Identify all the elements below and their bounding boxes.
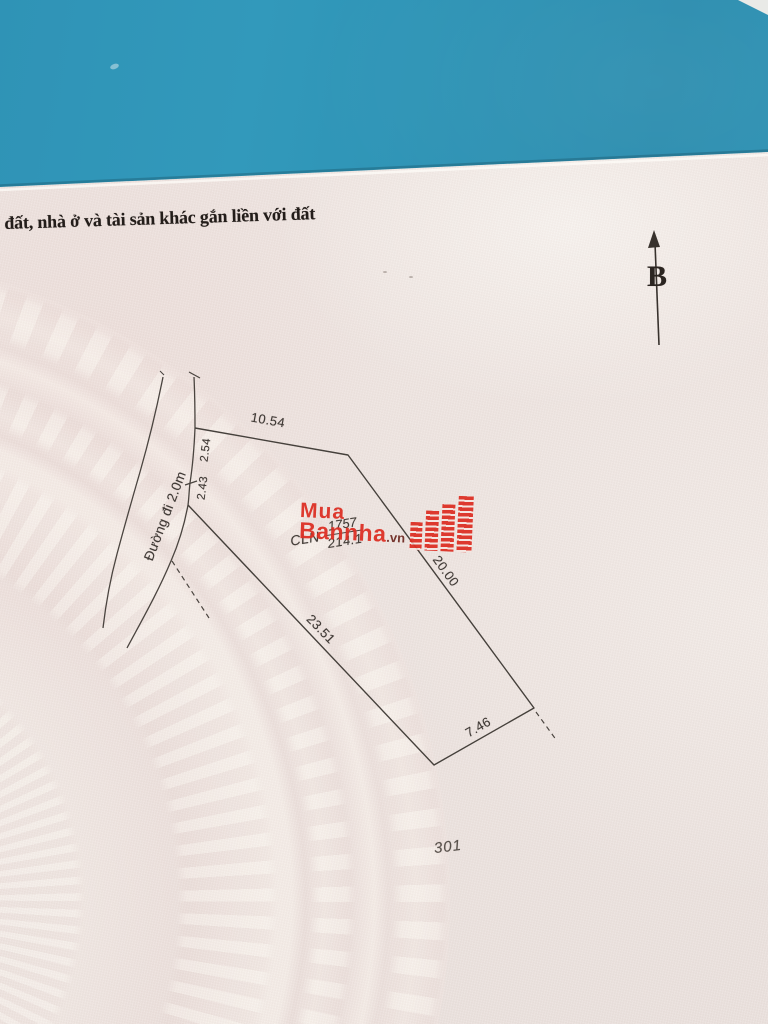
dashed-boundary-left — [172, 561, 209, 618]
land-certificate-photo: đất, nhà ở và tài sản khác gắn liền với … — [0, 0, 768, 1024]
page-number: 301 — [433, 837, 463, 857]
dashed-boundary-right — [536, 712, 557, 741]
road-left-edge — [103, 377, 163, 628]
watermark-wordmark: Mua Bannha.vn — [299, 501, 407, 546]
buildings-icon — [410, 494, 474, 553]
watermark-word2: Bannha — [299, 520, 387, 545]
north-arrow-head-icon — [648, 230, 660, 248]
north-label: B — [647, 260, 667, 294]
north-arrow-shaft — [655, 243, 659, 345]
paper-edge-highlight — [0, 155, 768, 190]
paper-edge-shadow — [0, 151, 768, 186]
watermark-domain-suffix: .vn — [386, 532, 405, 545]
segment-tick — [185, 481, 197, 485]
muabannha-watermark: Mua Bannha.vn — [299, 489, 474, 549]
road-end-dot — [160, 371, 164, 375]
